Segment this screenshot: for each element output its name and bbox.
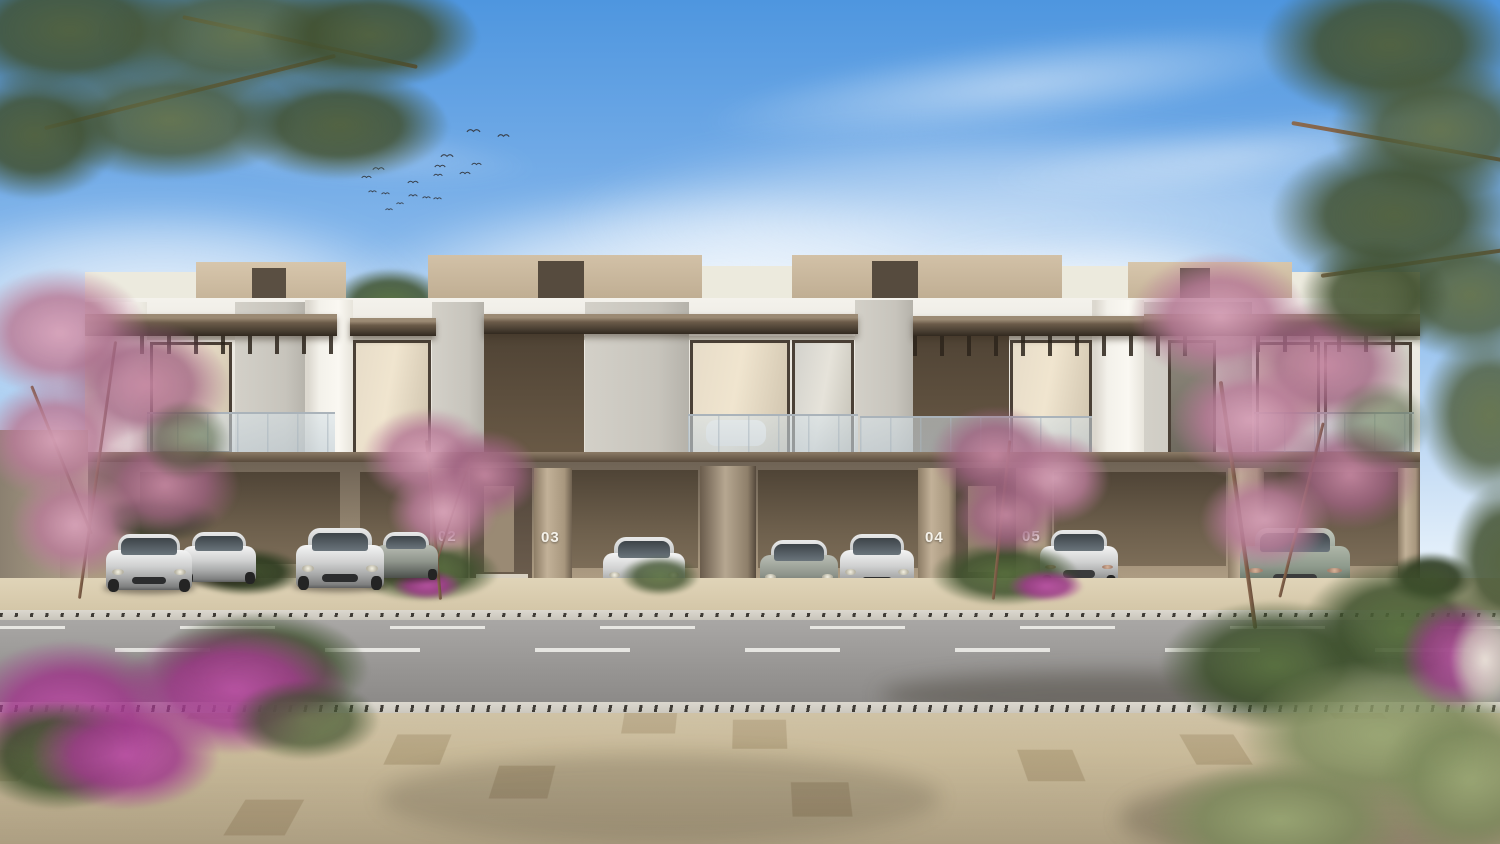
planter-flowers <box>1008 570 1084 602</box>
car-wheel <box>371 576 382 590</box>
bird-icon <box>440 152 454 158</box>
car-grille <box>132 577 166 585</box>
bird-icon <box>396 201 404 205</box>
car-sedan-front <box>106 534 192 590</box>
bird-icon <box>381 191 390 195</box>
car-glass <box>195 536 242 551</box>
car-wheel <box>245 572 255 584</box>
plaza-shadow <box>380 753 940 843</box>
unit-number-plate: 04 <box>925 529 944 546</box>
planter-bush <box>620 556 700 596</box>
car-glass <box>312 533 368 551</box>
car-taillight <box>1327 568 1342 573</box>
bird-icon <box>434 163 446 168</box>
car-grille <box>322 574 357 582</box>
roof-vent <box>872 261 918 299</box>
bird-icon <box>433 172 443 177</box>
car-wheel <box>428 569 436 580</box>
roof-vent <box>538 261 584 299</box>
bird-icon <box>497 132 510 138</box>
car-wheel <box>108 579 119 592</box>
roof-vent <box>252 268 286 300</box>
car-coupe-rear <box>182 532 256 582</box>
car-glass <box>386 536 427 550</box>
scene-render: 02 03 04 05 <box>0 0 1500 844</box>
blossom-foliage <box>140 400 230 480</box>
car-glass <box>121 538 176 555</box>
bird-icon <box>471 161 482 166</box>
bird-icon <box>466 127 481 133</box>
car-glass <box>853 538 900 555</box>
bird-icon <box>368 189 377 193</box>
bird-icon <box>422 195 431 199</box>
bird-icon <box>385 207 393 211</box>
unit-number-plate: 03 <box>541 529 560 546</box>
blossom-canopy <box>1200 470 1330 570</box>
blossom-foliage <box>1330 380 1430 470</box>
bird-icon <box>407 179 419 184</box>
car-glass <box>1054 534 1104 551</box>
pine-foliage <box>230 70 450 180</box>
bush-flowers <box>30 700 220 810</box>
bird-icon <box>459 170 471 175</box>
canopy <box>350 318 436 336</box>
bird-icon <box>408 193 418 197</box>
car-headlight <box>845 569 855 576</box>
car-sedan-front <box>296 528 384 588</box>
blossom-canopy <box>952 474 1060 556</box>
car-wheel <box>179 579 190 592</box>
canopy <box>484 314 858 334</box>
car-taillight <box>1102 565 1113 569</box>
car-wheel <box>298 576 309 590</box>
pine-foliage <box>1300 240 1450 350</box>
car-glass <box>774 544 824 560</box>
bush-foliage <box>230 680 380 760</box>
bird-icon <box>433 196 442 200</box>
